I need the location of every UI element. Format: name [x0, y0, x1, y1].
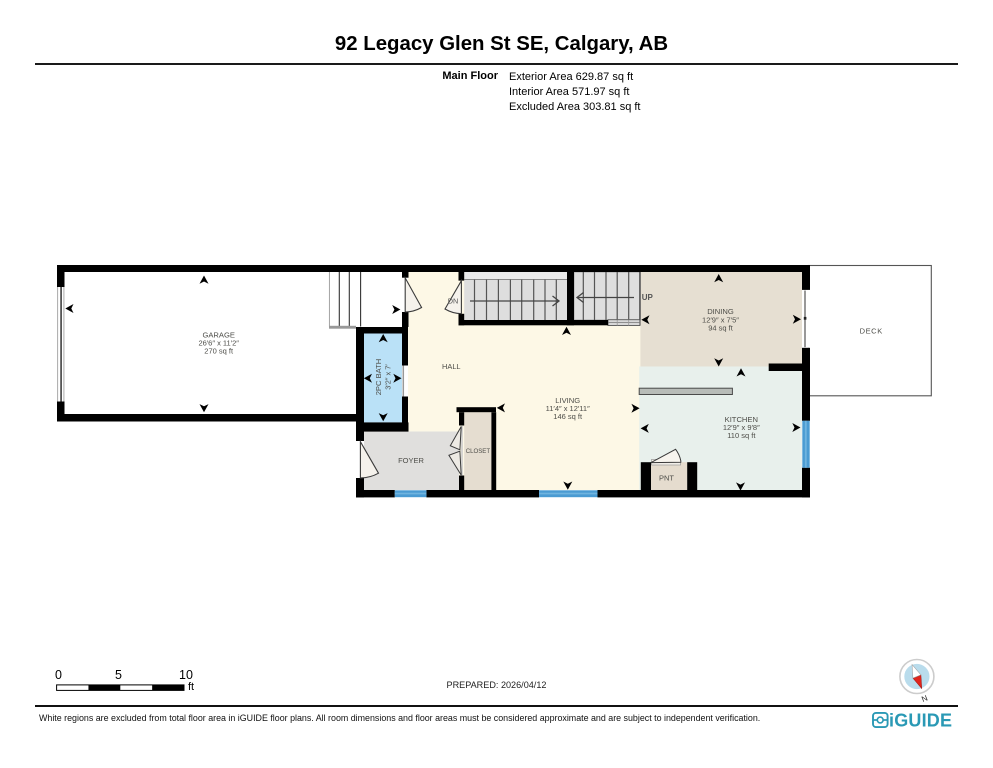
svg-text:2PC BATH: 2PC BATH	[374, 359, 383, 396]
svg-text:iGUIDE: iGUIDE	[889, 711, 952, 731]
svg-text:DN: DN	[448, 296, 459, 305]
svg-text:DECK: DECK	[860, 326, 883, 335]
svg-text:CLOSET: CLOSET	[466, 448, 491, 455]
svg-text:270 sq ft: 270 sq ft	[204, 346, 234, 355]
svg-text:146 sq ft: 146 sq ft	[553, 412, 583, 421]
svg-text:PNT: PNT	[659, 473, 674, 482]
svg-text:3′2″ x 7′: 3′2″ x 7′	[383, 364, 392, 390]
svg-text:94 sq ft: 94 sq ft	[708, 323, 734, 332]
svg-text:HALL: HALL	[442, 362, 461, 371]
svg-text:FOYER: FOYER	[398, 456, 424, 465]
svg-text:UP: UP	[642, 293, 654, 302]
svg-text:110 sq ft: 110 sq ft	[727, 431, 756, 440]
svg-text:N: N	[920, 693, 929, 704]
